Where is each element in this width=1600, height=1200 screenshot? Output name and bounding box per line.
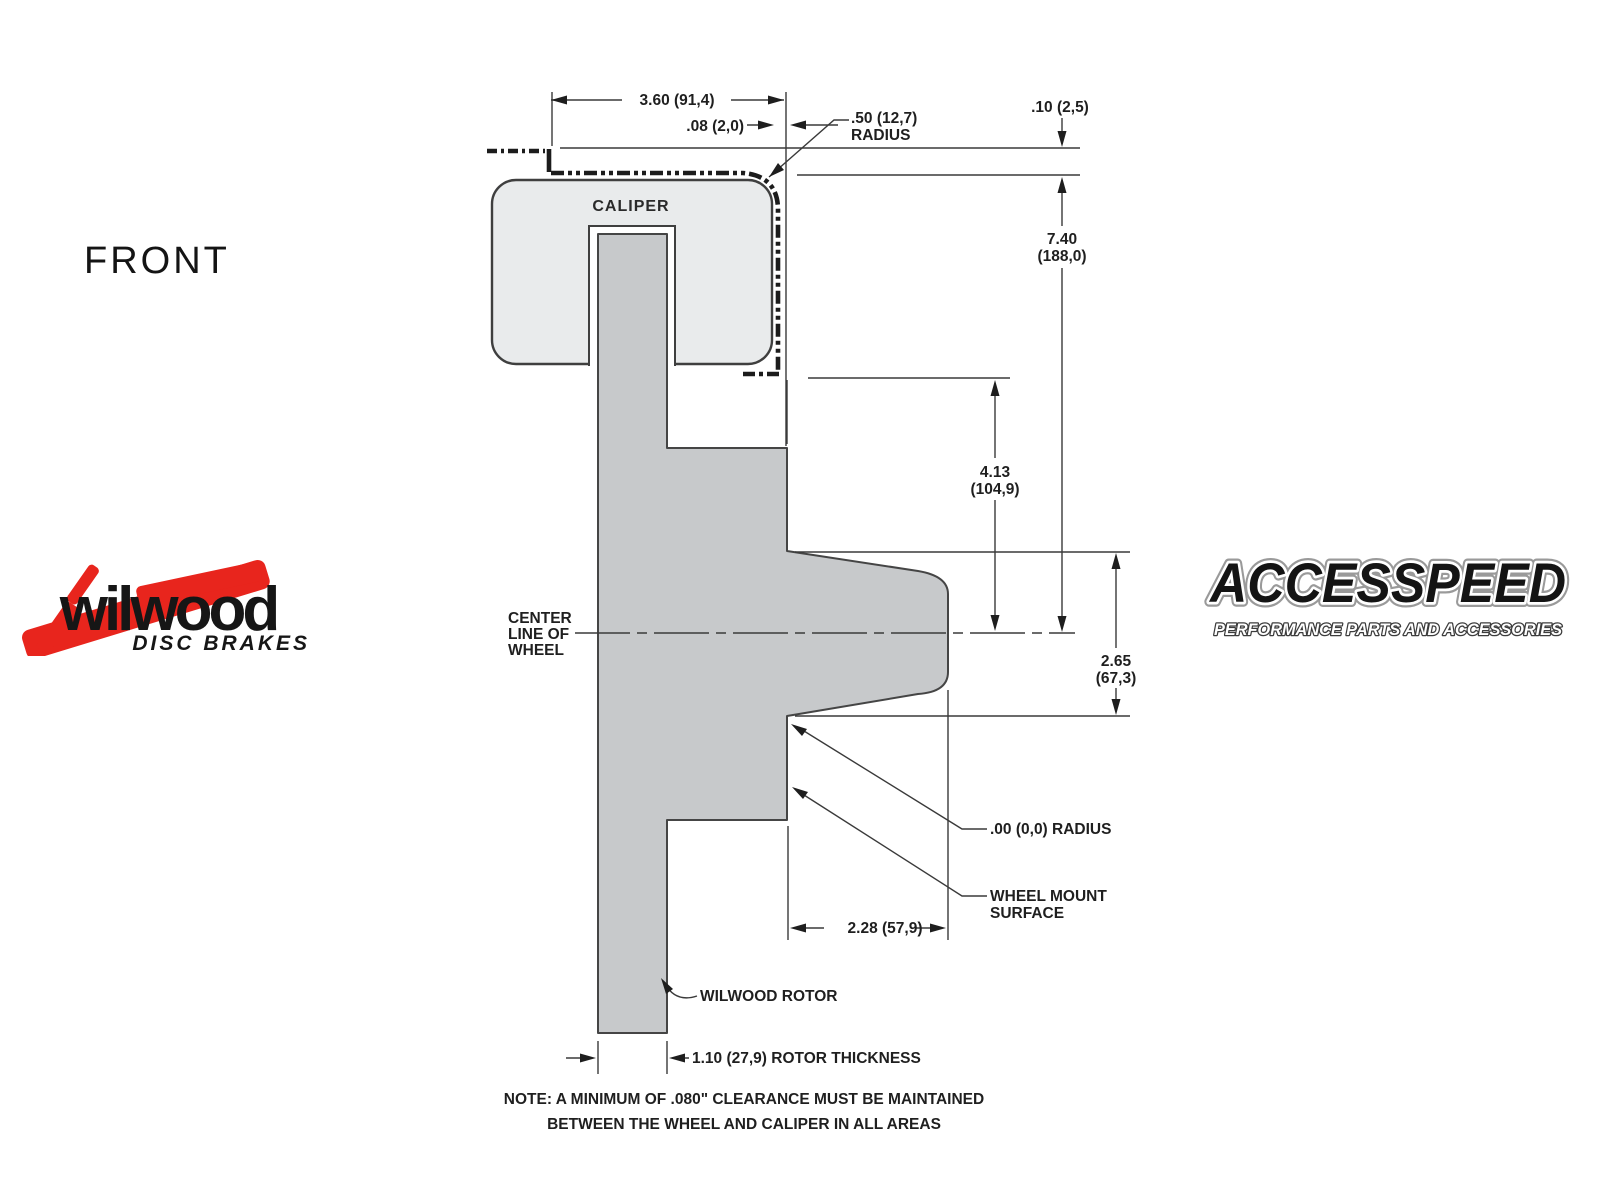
dim-text-0-10: .10 (2,5) xyxy=(1031,99,1089,116)
caliper-label: CALIPER xyxy=(592,198,669,215)
centerline-label-line2: LINE OF xyxy=(508,626,569,643)
leader-wheel-mount xyxy=(804,795,987,896)
dim-text-1-10: 1.10 (27,9) ROTOR THICKNESS xyxy=(692,1050,921,1067)
technical-drawing: CALIPER xyxy=(0,0,1600,1200)
centerline-label-line1: CENTER xyxy=(508,610,572,627)
label-wheel-mount-line1: WHEEL MOUNT xyxy=(990,888,1107,905)
dim-text-3-60: 3.60 (91,4) xyxy=(640,92,715,109)
note-line2: BETWEEN THE WHEEL AND CALIPER IN ALL ARE… xyxy=(547,1116,941,1133)
dim-text-0-50-line1: .50 (12,7) xyxy=(851,110,917,127)
diagram-page: FRONT wilwood DISC BRAKES ACCESSPEED ACC… xyxy=(0,0,1600,1200)
dim-text-4-13-line2: (104,9) xyxy=(970,481,1019,498)
dim-text-2-28: 2.28 (57,9) xyxy=(848,920,923,937)
leader-radius-0-00 xyxy=(804,731,987,829)
ext-lines-rotor-thickness xyxy=(598,1041,667,1074)
dim-text-0-00-radius: .00 (0,0) RADIUS xyxy=(990,821,1111,838)
dim-text-2-65-line1: 2.65 xyxy=(1101,653,1132,670)
label-wilwood-rotor: WILWOOD ROTOR xyxy=(700,988,837,1005)
dim-text-4-13-line1: 4.13 xyxy=(980,464,1011,481)
dim-text-0-08: .08 (2,0) xyxy=(686,118,744,135)
dim-text-7-40-line2: (188,0) xyxy=(1037,248,1086,265)
label-wheel-mount-line2: SURFACE xyxy=(990,905,1064,922)
dim-text-2-65-line2: (67,3) xyxy=(1096,670,1137,687)
centerline-label-line3: WHEEL xyxy=(508,642,564,659)
note-line1: NOTE: A MINIMUM OF .080" CLEARANCE MUST … xyxy=(504,1091,984,1108)
dim-text-7-40-line1: 7.40 xyxy=(1047,231,1077,248)
dim-text-0-50-line2: RADIUS xyxy=(851,127,910,144)
